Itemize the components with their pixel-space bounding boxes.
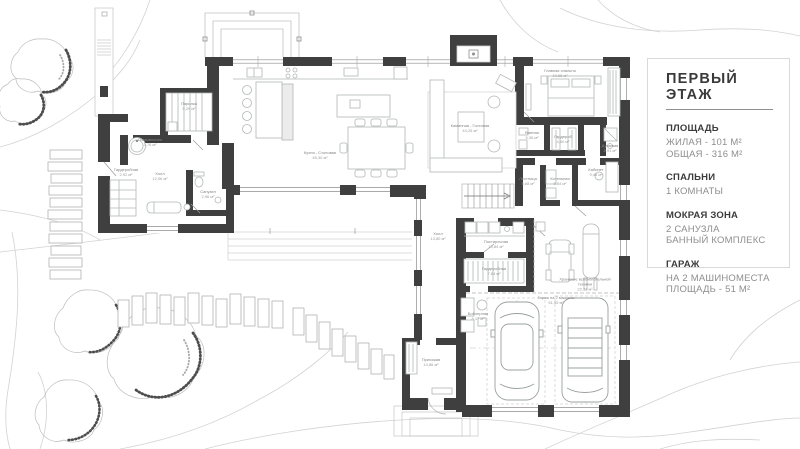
legend-line: БАННЫЙ КОМПЛЕКС	[666, 235, 775, 247]
gate-marker	[100, 86, 108, 97]
legend-section-header: СПАЛЬНИ	[666, 172, 775, 183]
tv-console	[526, 84, 531, 110]
sink	[519, 128, 528, 135]
legend-divider	[666, 109, 773, 110]
car-sedan	[491, 302, 543, 400]
legend-section-wet-zone: МОКРАЯ ЗОНА 2 САНУЗЛА БАННЫЙ КОМПЛЕКС	[666, 210, 775, 247]
tree	[11, 39, 73, 93]
floor-plan-canvas: Парилка5,29 м² Помывочная3,76 м² Холл12,…	[0, 0, 800, 449]
tree	[35, 380, 103, 442]
island-with-sink	[337, 95, 390, 117]
atv	[546, 240, 574, 282]
deck-path	[95, 8, 113, 116]
closet-hangers	[464, 259, 524, 283]
legend-line: ОБЩАЯ - 316 М²	[666, 149, 775, 161]
bed	[541, 76, 601, 116]
legend-section-bedrooms: СПАЛЬНИ 1 КОМНАТЫ	[666, 172, 775, 198]
patio-terrace-top	[203, 11, 301, 57]
car-suv	[558, 298, 610, 402]
legend-line: 1 КОМНАТЫ	[666, 186, 775, 198]
legend-line: НА 2 МАШИНОМЕСТА	[666, 273, 775, 285]
spa-shelving	[110, 180, 136, 216]
washing-tub	[129, 138, 146, 155]
sauna-benches	[166, 93, 212, 131]
tree	[0, 79, 46, 125]
legend-line: 2 САНУЗЛА	[666, 224, 775, 236]
legend-line: ПЛОЩАДЬ - 51 М²	[666, 284, 775, 296]
bedroom-wardrobe	[608, 68, 620, 116]
terrace-deck-lines	[228, 224, 412, 260]
legend-title: ПЕРВЫЙ ЭТАЖ	[666, 71, 775, 103]
legend-section-area: ПЛОЩАДЬ ЖИЛАЯ - 101 М² ОБЩАЯ - 316 М²	[666, 123, 775, 160]
legend-section-header: МОКРАЯ ЗОНА	[666, 210, 775, 221]
legend-panel: ПЕРВЫЙ ЭТАЖ ПЛОЩАДЬ ЖИЛАЯ - 101 М² ОБЩАЯ…	[647, 58, 790, 268]
tall-cabinets	[282, 84, 293, 140]
legend-section-garage: ГАРАЖ НА 2 МАШИНОМЕСТА ПЛОЩАДЬ - 51 М²	[666, 259, 775, 296]
fireplace-icon	[457, 46, 490, 62]
toilet	[519, 140, 527, 149]
boiler-room-equipment	[546, 170, 556, 198]
legend-section-header: ПЛОЩАДЬ	[666, 123, 775, 134]
legend-line: ЖИЛАЯ - 101 М²	[666, 137, 775, 149]
legend-section-header: ГАРАЖ	[666, 259, 775, 270]
dining-table	[340, 119, 413, 177]
